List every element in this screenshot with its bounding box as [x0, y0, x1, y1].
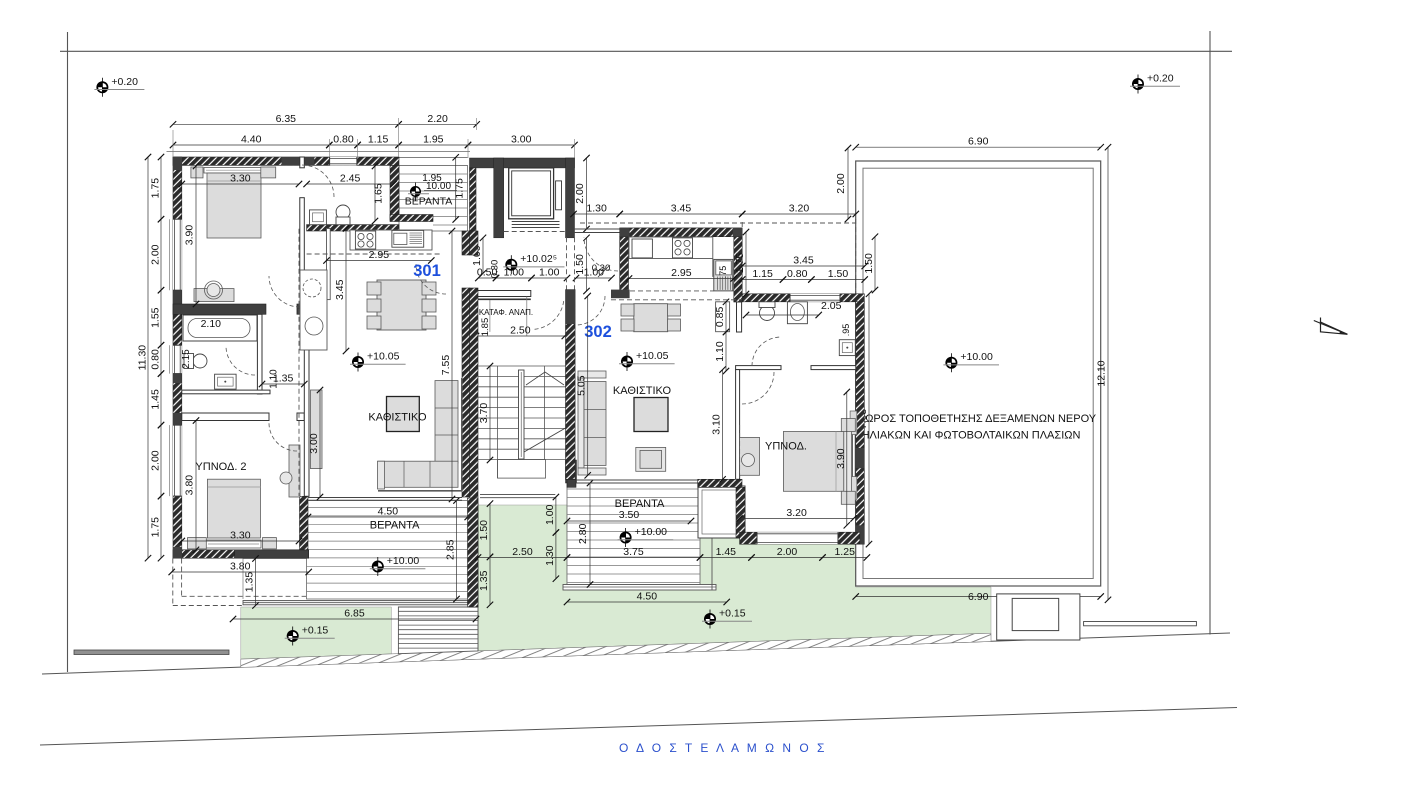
svg-text:3.20: 3.20 — [789, 203, 810, 215]
svg-text:2.00: 2.00 — [150, 450, 162, 471]
svg-text:0.30: 0.30 — [592, 263, 611, 274]
svg-text:2.00: 2.00 — [777, 546, 798, 558]
svg-text:3.80: 3.80 — [230, 561, 251, 573]
svg-text:1.75: 1.75 — [150, 517, 162, 538]
svg-text:1.45: 1.45 — [150, 389, 162, 410]
svg-text:.75: .75 — [718, 266, 728, 279]
svg-text:4.40: 4.40 — [241, 134, 262, 146]
svg-text:1.35: 1.35 — [478, 570, 490, 591]
svg-text:6.35: 6.35 — [276, 113, 297, 125]
svg-text:ΒΕΡΑΝΤΑ: ΒΕΡΑΝΤΑ — [405, 196, 452, 208]
svg-text:2.05: 2.05 — [821, 300, 842, 312]
svg-text:7.55: 7.55 — [440, 355, 452, 376]
svg-text:0.80: 0.80 — [787, 268, 808, 280]
svg-text:1.55: 1.55 — [150, 307, 162, 328]
svg-text:2.20: 2.20 — [427, 113, 448, 125]
svg-text:ΧΩΡΟΣ ΤΟΠΟΘΕΤΗΣΗΣ ΔΕΞΑΜΕΝΩΝ ΝΕ: ΧΩΡΟΣ ΤΟΠΟΘΕΤΗΣΗΣ ΔΕΞΑΜΕΝΩΝ ΝΕΡΟΥ — [858, 413, 1097, 425]
svg-text:3.45: 3.45 — [793, 255, 814, 267]
svg-text:0.50: 0.50 — [477, 267, 498, 279]
svg-text:1.95: 1.95 — [423, 134, 444, 146]
svg-text:+10.05: +10.05 — [367, 351, 400, 363]
svg-text:+10.02⁵: +10.02⁵ — [520, 253, 557, 265]
svg-text:1.00: 1.00 — [539, 267, 560, 279]
svg-text:+10.00: +10.00 — [635, 526, 668, 538]
svg-text:1.65: 1.65 — [373, 183, 385, 204]
svg-text:+0.20: +0.20 — [111, 76, 138, 88]
svg-text:1.30: 1.30 — [544, 545, 556, 566]
svg-text:3.20: 3.20 — [786, 507, 807, 519]
svg-text:1.30: 1.30 — [586, 203, 607, 215]
svg-text:6.85: 6.85 — [344, 608, 365, 620]
svg-text:301: 301 — [413, 262, 441, 280]
svg-text:0.80: 0.80 — [333, 134, 354, 146]
svg-text:2.85: 2.85 — [445, 539, 457, 560]
svg-text:2.80: 2.80 — [577, 523, 589, 544]
svg-text:4.50: 4.50 — [378, 506, 399, 518]
svg-text:1.00: 1.00 — [504, 267, 525, 279]
svg-text:2.95: 2.95 — [369, 249, 390, 261]
svg-text:1.50: 1.50 — [828, 268, 849, 280]
svg-text:1.50: 1.50 — [478, 520, 490, 541]
svg-text:1.00: 1.00 — [544, 504, 556, 525]
svg-text:3.90: 3.90 — [835, 448, 847, 469]
svg-text:2.10: 2.10 — [201, 318, 222, 330]
svg-text:ΚΑΘΙΣΤΙΚΟ: ΚΑΘΙΣΤΙΚΟ — [613, 385, 672, 397]
svg-text:1.50: 1.50 — [863, 253, 875, 274]
svg-text:1.10: 1.10 — [714, 341, 726, 362]
svg-text:2.00: 2.00 — [574, 183, 586, 204]
svg-text:ΥΠΝΟΔ.: ΥΠΝΟΔ. — [765, 441, 807, 453]
svg-text:1.45: 1.45 — [716, 546, 737, 558]
svg-text:1.15: 1.15 — [368, 134, 389, 146]
svg-text:1.15: 1.15 — [752, 268, 773, 280]
svg-text:4.50: 4.50 — [637, 591, 658, 603]
svg-text:3.80: 3.80 — [184, 475, 196, 496]
svg-text:3.90: 3.90 — [184, 225, 196, 246]
svg-text:0.85: 0.85 — [714, 307, 726, 328]
svg-text:5.05: 5.05 — [576, 375, 588, 396]
svg-text:6.90: 6.90 — [968, 591, 989, 603]
svg-text:1.75: 1.75 — [150, 178, 162, 199]
svg-text:302: 302 — [584, 323, 612, 341]
svg-text:1.75: 1.75 — [454, 178, 466, 199]
svg-text:1.50: 1.50 — [574, 254, 586, 275]
svg-text:2.50: 2.50 — [510, 325, 531, 337]
svg-text:1.25: 1.25 — [834, 546, 855, 558]
svg-text:2.95: 2.95 — [671, 267, 692, 279]
svg-text:2.15: 2.15 — [181, 349, 192, 369]
svg-text:2.00: 2.00 — [150, 244, 162, 265]
svg-text:12.10: 12.10 — [1096, 360, 1108, 386]
svg-text:2.00: 2.00 — [835, 173, 847, 194]
svg-text:Ο Δ Ο Σ Τ Ε Λ Α Μ Ω Ν Ο Σ: Ο Δ Ο Σ Τ Ε Λ Α Μ Ω Ν Ο Σ — [619, 741, 827, 755]
svg-text:3.45: 3.45 — [671, 203, 692, 215]
svg-text:3.45: 3.45 — [334, 279, 346, 300]
svg-text:1.85: 1.85 — [480, 318, 491, 337]
svg-text:+10.00: +10.00 — [960, 351, 993, 363]
svg-text:3.50: 3.50 — [619, 509, 640, 521]
svg-text:ΥΠΝΟΔ. 2: ΥΠΝΟΔ. 2 — [195, 461, 246, 473]
svg-text:+0.15: +0.15 — [719, 608, 746, 620]
svg-text:+0.20: +0.20 — [1147, 73, 1174, 85]
svg-text:+10.05: +10.05 — [636, 350, 669, 362]
svg-text:1.35: 1.35 — [244, 572, 256, 593]
svg-text:0.80: 0.80 — [150, 349, 162, 370]
svg-text:3.30: 3.30 — [230, 173, 251, 185]
svg-text:+10.00: +10.00 — [387, 555, 420, 567]
svg-text:6.90: 6.90 — [968, 136, 989, 148]
svg-text:3.10: 3.10 — [711, 414, 723, 435]
svg-text:2.50: 2.50 — [512, 546, 533, 558]
svg-text:.95: .95 — [841, 324, 851, 337]
svg-text:ΚΑΘΙΣΤΙΚΟ: ΚΑΘΙΣΤΙΚΟ — [368, 411, 427, 423]
svg-text:3.00: 3.00 — [308, 433, 320, 454]
svg-text:11.30: 11.30 — [137, 345, 149, 371]
svg-text:ΗΛΙΑΚΩΝ ΚΑΙ ΦΩΤΟΒΟΛΤΑΙΚΩΝ ΠΛΑΣ: ΗΛΙΑΚΩΝ ΚΑΙ ΦΩΤΟΒΟΛΤΑΙΚΩΝ ΠΛΑΣΙΩΝ — [862, 430, 1081, 442]
svg-text:ΚΑΤΑΦ. ΑΝΑΠ.: ΚΑΤΑΦ. ΑΝΑΠ. — [479, 308, 533, 317]
svg-text:2.45: 2.45 — [340, 173, 361, 185]
svg-text:3.00: 3.00 — [511, 134, 532, 146]
svg-text:1.10: 1.10 — [269, 369, 280, 389]
svg-text:3.30: 3.30 — [230, 530, 251, 542]
svg-text:+0.15: +0.15 — [302, 625, 329, 637]
svg-text:3.70: 3.70 — [478, 403, 490, 424]
svg-text:1.75: 1.75 — [734, 253, 746, 274]
svg-text:3.75: 3.75 — [623, 546, 644, 558]
svg-text:ΒΕΡΑΝΤΑ: ΒΕΡΑΝΤΑ — [370, 520, 420, 532]
